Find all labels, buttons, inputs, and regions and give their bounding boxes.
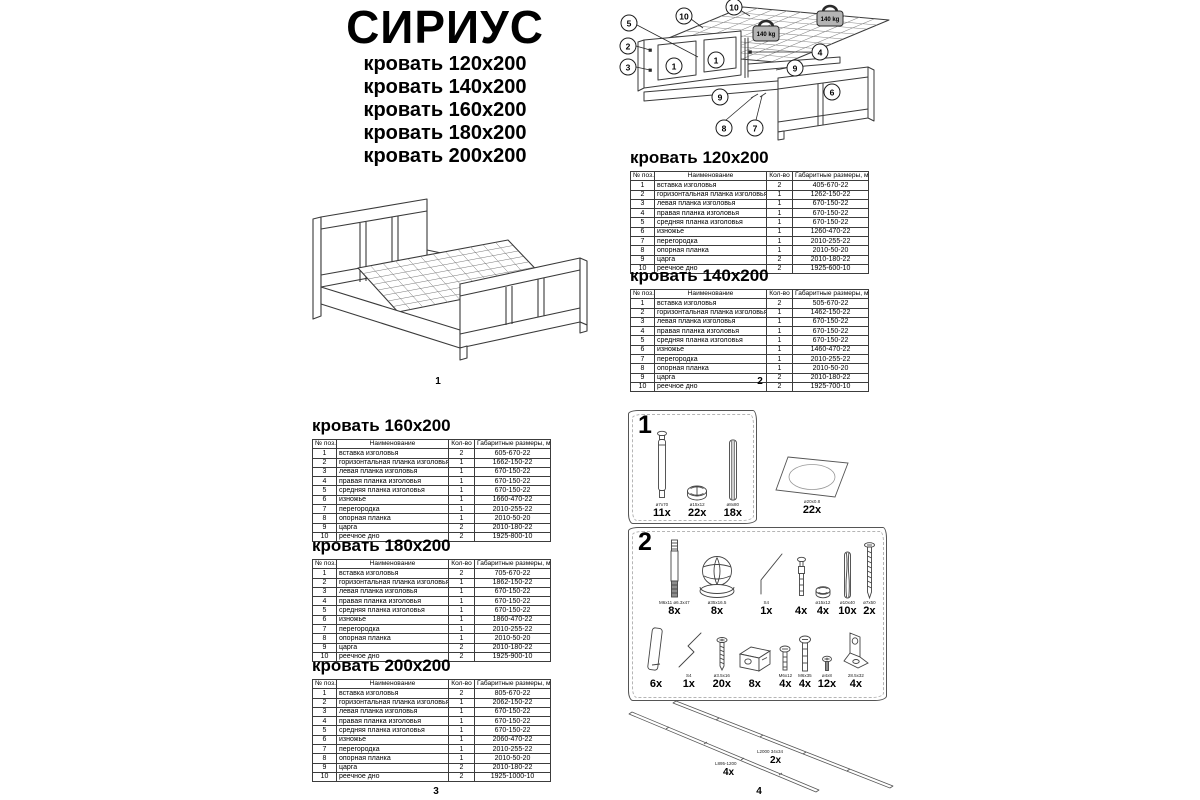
col-header: Габаритные размеры, мм xyxy=(793,172,869,181)
table-cell: средняя планка изголовья xyxy=(337,726,449,735)
small-cam-lock-icon xyxy=(814,585,832,600)
table-cell: 3 xyxy=(631,317,655,326)
table-cell: 5 xyxy=(631,336,655,345)
hardware-count: 12x xyxy=(818,678,836,690)
table-cell: 1 xyxy=(631,181,655,190)
table-cell: реечное дно xyxy=(337,772,449,781)
table-cell: 5 xyxy=(313,606,337,615)
table-cell: 3 xyxy=(631,199,655,208)
hardware-item: ø10х40 10x xyxy=(838,550,856,617)
table-cell: средняя планка изголовья xyxy=(655,336,767,345)
table-cell: 1 xyxy=(767,227,793,236)
table-cell: 1 xyxy=(767,327,793,336)
parts-table: № поз. Наименование Кол-во Габаритные ра… xyxy=(630,289,869,392)
table-cell: средняя планка изголовья xyxy=(337,486,449,495)
table-cell: опорная планка xyxy=(655,364,767,373)
table-title: кровать 160х200 xyxy=(312,416,552,436)
col-header: Кол-во xyxy=(449,680,475,689)
table-cell: 2 xyxy=(313,698,337,707)
step-number: 2 xyxy=(638,530,652,555)
table-cell: 7 xyxy=(313,625,337,634)
table-cell: 2060-470-22 xyxy=(475,735,551,744)
table-cell: 7 xyxy=(631,237,655,246)
table-cell: 4 xyxy=(631,327,655,336)
table-cell: 5 xyxy=(313,726,337,735)
double-bolt-icon xyxy=(668,538,681,600)
hardware-count: 2x xyxy=(863,605,875,617)
callout-9: 9 xyxy=(787,60,804,77)
table-cell: 2010-180-22 xyxy=(475,523,551,532)
table-cell: царга xyxy=(337,763,449,772)
table-row: 3левая планка изголовья1670-150-22 xyxy=(313,467,551,476)
hardware-count: 18x xyxy=(724,507,742,519)
table-cell: 1 xyxy=(767,336,793,345)
table-row: 7перегородка12010-255-22 xyxy=(631,237,869,246)
table-row: 6изножье11660-470-22 xyxy=(313,495,551,504)
hardware-item: ø35х16.5 8x xyxy=(696,554,738,617)
table-cell: 670-150-22 xyxy=(475,467,551,476)
table-row: 2горизонтальная планка изголовья12062-15… xyxy=(313,698,551,707)
size-line: кровать 200х200 xyxy=(295,145,595,168)
col-header: № поз. xyxy=(313,680,337,689)
dowel-icon xyxy=(727,438,739,502)
table-cell: 1 xyxy=(767,308,793,317)
table-cell: 1 xyxy=(449,467,475,476)
table-cell: средняя планка изголовья xyxy=(655,218,767,227)
col-header: № поз. xyxy=(313,560,337,569)
parts-table: № поз. Наименование Кол-во Габаритные ра… xyxy=(630,171,869,274)
hardware-count: 20x xyxy=(713,678,731,690)
parts-table: № поз. Наименование Кол-во Габаритные ра… xyxy=(312,679,551,782)
table-cell: горизонтальная планка изголовья xyxy=(655,190,767,199)
table-cell: 1 xyxy=(449,477,475,486)
table-cell: горизонтальная планка изголовья xyxy=(337,458,449,467)
table-cell: 2 xyxy=(767,255,793,264)
table-cell: 670-150-22 xyxy=(475,486,551,495)
table-cell: 3 xyxy=(313,467,337,476)
table-header-row: № поз. Наименование Кол-во Габаритные ра… xyxy=(313,560,551,569)
table-row: 6изножье11860-470-22 xyxy=(313,615,551,624)
table-cell: 1 xyxy=(767,190,793,199)
table-cell: изножье xyxy=(337,495,449,504)
callout-9: 9 xyxy=(712,89,729,106)
table-cell: 5 xyxy=(631,218,655,227)
table-cell: 8 xyxy=(313,634,337,643)
table-cell: 405-670-22 xyxy=(793,181,869,190)
table-cell: 3 xyxy=(313,707,337,716)
hardware-count: 1x xyxy=(760,605,772,617)
table-cell: 2062-150-22 xyxy=(475,698,551,707)
table-row: 5средняя планка изголовья1670-150-22 xyxy=(313,606,551,615)
table-cell: 1 xyxy=(449,495,475,504)
table-cell: 670-150-22 xyxy=(793,199,869,208)
cover-sticker-icon xyxy=(774,455,850,499)
table-row: 10реечное дно21925-1000-10 xyxy=(313,772,551,781)
table-cell: 1 xyxy=(449,505,475,514)
table-cell: 1 xyxy=(449,707,475,716)
callout-6: 6 xyxy=(824,84,841,101)
table-cell: левая планка изголовья xyxy=(337,707,449,716)
table-cell: 1 xyxy=(449,458,475,467)
table-cell: вставка изголовья xyxy=(655,299,767,308)
parts-table-200: кровать 200х200 № поз. Наименование Кол-… xyxy=(312,656,552,782)
hardware-item: 4x xyxy=(795,556,808,617)
table-row: 5средняя планка изголовья1670-150-22 xyxy=(631,336,869,345)
hardware-count: 4x xyxy=(779,678,791,690)
table-cell: горизонтальная планка изголовья xyxy=(337,698,449,707)
table-row: 9царга22010-180-22 xyxy=(313,643,551,652)
table-cell: правая планка изголовья xyxy=(655,327,767,336)
hardware-item: 6x xyxy=(647,625,665,690)
page-number: 3 xyxy=(428,786,444,797)
weight-icon xyxy=(817,6,843,26)
parts-table-120: кровать 120х200 № поз. Наименование Кол-… xyxy=(630,148,870,274)
hardware-item: S4 1x xyxy=(744,548,788,617)
callout-4: 4 xyxy=(812,44,829,61)
table-title: кровать 200х200 xyxy=(312,656,552,676)
table-row: 3левая планка изголовья1670-150-22 xyxy=(631,317,869,326)
table-row: 2горизонтальная планка изголовья11862-15… xyxy=(313,578,551,587)
long-bolt-icon xyxy=(655,430,669,502)
table-cell: перегородка xyxy=(337,625,449,634)
hardware-count: 8x xyxy=(749,678,761,690)
table-cell: 7 xyxy=(313,745,337,754)
table-cell: левая планка изголовья xyxy=(337,467,449,476)
parts-table: № поз. Наименование Кол-во Габаритные ра… xyxy=(312,439,551,542)
table-cell: 2010-50-20 xyxy=(475,634,551,643)
hardware-panel-2: 2 M6х11 ø6.3х47 8x ø35х16.5 8x xyxy=(628,527,887,701)
table-cell: 1 xyxy=(449,587,475,596)
table-header-row: № поз. Наименование Кол-во Габаритные ра… xyxy=(631,290,869,299)
table-cell: перегородка xyxy=(655,237,767,246)
angle-bracket-icon xyxy=(842,631,870,673)
table-row: 3левая планка изголовья1670-150-22 xyxy=(313,587,551,596)
hardware-item: ø15х12 4x xyxy=(814,585,832,617)
table-cell: 670-150-22 xyxy=(793,317,869,326)
table-cell: 1 xyxy=(449,717,475,726)
table-cell: 6 xyxy=(631,345,655,354)
table-cell: 2010-255-22 xyxy=(475,745,551,754)
table-cell: 1 xyxy=(449,698,475,707)
table-cell: 1 xyxy=(449,754,475,763)
callout-3: 3 xyxy=(620,59,637,76)
col-header: Габаритные размеры, мм xyxy=(475,680,551,689)
hardware-count: 6x xyxy=(650,678,662,690)
table-header-row: № поз. Наименование Кол-во Габаритные ра… xyxy=(313,680,551,689)
table-row: 3левая планка изголовья1670-150-22 xyxy=(313,707,551,716)
hardware-count: 8x xyxy=(668,605,680,617)
table-cell: перегородка xyxy=(337,745,449,754)
table-title: кровать 140х200 xyxy=(630,266,870,286)
table-row: 8опорная планка12010-50-20 xyxy=(313,754,551,763)
col-header: Наименование xyxy=(337,560,449,569)
parts-table-140: кровать 140х200 № поз. Наименование Кол-… xyxy=(630,266,870,392)
table-cell: 10 xyxy=(313,772,337,781)
table-cell: 4 xyxy=(313,717,337,726)
table-cell: 2 xyxy=(313,578,337,587)
parts-table-180: кровать 180х200 № поз. Наименование Кол-… xyxy=(312,536,552,662)
size-line: кровать 140х200 xyxy=(295,76,595,99)
table-row: 1вставка изголовья2405-670-22 xyxy=(631,181,869,190)
table-cell: 1 xyxy=(313,689,337,698)
table-row: 4правая планка изголовья1670-150-22 xyxy=(313,477,551,486)
callout-5: 5 xyxy=(621,15,638,32)
table-cell: 9 xyxy=(313,643,337,652)
table-cell: левая планка изголовья xyxy=(655,317,767,326)
table-row: 7перегородка12010-255-22 xyxy=(313,505,551,514)
slat-count: 2x xyxy=(770,756,781,766)
table-row: 1вставка изголовья2605-670-22 xyxy=(313,449,551,458)
callout-8: 8 xyxy=(716,120,733,137)
table-row: 2горизонтальная планка изголовья11262-15… xyxy=(631,190,869,199)
table-cell: опорная планка xyxy=(337,634,449,643)
wood-screw-icon xyxy=(716,637,728,673)
page-title: СИРИУС xyxy=(295,2,595,53)
table-row: 1вставка изголовья2805-670-22 xyxy=(313,689,551,698)
table-row: 4правая планка изголовья1670-150-22 xyxy=(631,209,869,218)
table-row: 9царга22010-180-22 xyxy=(313,523,551,532)
table-header-row: № поз. Наименование Кол-во Габаритные ра… xyxy=(313,440,551,449)
table-cell: 4 xyxy=(313,477,337,486)
hardware-count: 10x xyxy=(838,605,856,617)
table-cell: 2 xyxy=(767,382,793,391)
table-cell: 1860-470-22 xyxy=(475,615,551,624)
hardware-item: M6х35 4x xyxy=(798,635,812,690)
table-row: 4правая планка изголовья1670-150-22 xyxy=(313,597,551,606)
table-row: 10реечное дно21925-700-10 xyxy=(631,382,869,391)
slat-count: 4x xyxy=(723,768,734,778)
table-cell: 6 xyxy=(313,615,337,624)
table-cell: 2 xyxy=(449,449,475,458)
table-cell: 6 xyxy=(313,735,337,744)
exploded-diagram: 140 kg 140 kg 523101011496987 xyxy=(608,0,890,150)
table-cell: 1 xyxy=(449,726,475,735)
table-cell: 670-150-22 xyxy=(475,707,551,716)
table-cell: 6 xyxy=(631,227,655,236)
table-cell: 670-150-22 xyxy=(475,606,551,615)
table-cell: 1 xyxy=(449,634,475,643)
table-cell: 1260-470-22 xyxy=(793,227,869,236)
table-row: 5средняя планка изголовья1670-150-22 xyxy=(313,486,551,495)
table-cell: 705-670-22 xyxy=(475,569,551,578)
table-cell: правая планка изголовья xyxy=(337,477,449,486)
corner-block-icon xyxy=(737,643,773,673)
table-cell: 2 xyxy=(449,569,475,578)
title-block: СИРИУС кровать 120х200 кровать 140х200 к… xyxy=(295,2,595,168)
table-cell: 6 xyxy=(313,495,337,504)
table-cell: 2 xyxy=(449,763,475,772)
page-number: 2 xyxy=(752,376,768,387)
hardware-item: ø7х70 11x xyxy=(653,430,671,519)
table-cell: 2010-50-20 xyxy=(475,514,551,523)
table-row: 2горизонтальная планка изголовья11462-15… xyxy=(631,308,869,317)
table-cell: опорная планка xyxy=(655,246,767,255)
table-cell: 1 xyxy=(449,735,475,744)
table-cell: 805-670-22 xyxy=(475,689,551,698)
table-cell: левая планка изголовья xyxy=(655,199,767,208)
hardware-item: M6х12 4x xyxy=(779,645,793,690)
table-cell: опорная планка xyxy=(337,754,449,763)
table-cell: реечное дно xyxy=(655,382,767,391)
weight-label: 140 kg xyxy=(821,17,840,23)
table-row: 1вставка изголовья2705-670-22 xyxy=(313,569,551,578)
table-cell: 2 xyxy=(767,373,793,382)
table-cell: вставка изголовья xyxy=(337,449,449,458)
table-cell: 2010-255-22 xyxy=(475,505,551,514)
table-cell: горизонтальная планка изголовья xyxy=(337,578,449,587)
z-key-icon xyxy=(671,629,707,673)
table-cell: 1 xyxy=(767,209,793,218)
table-cell: 1 xyxy=(449,745,475,754)
table-cell: 7 xyxy=(313,505,337,514)
hardware-item: M6х11 ø6.3х47 8x xyxy=(659,538,690,617)
table-cell: 2 xyxy=(631,190,655,199)
table-row: 8опорная планка12010-50-20 xyxy=(313,514,551,523)
hex-key-icon xyxy=(744,548,788,600)
table-row: 6изножье11260-470-22 xyxy=(631,227,869,236)
table-cell: царга xyxy=(655,255,767,264)
table-cell: горизонтальная планка изголовья xyxy=(655,308,767,317)
flat-plate-icon xyxy=(647,625,665,673)
table-cell: перегородка xyxy=(337,505,449,514)
table-cell: перегородка xyxy=(655,355,767,364)
table-row: 4правая планка изголовья1670-150-22 xyxy=(313,717,551,726)
hardware-count: 8x xyxy=(711,605,723,617)
hardware-item: 28.5х32 4x xyxy=(842,631,870,690)
table-cell: 1 xyxy=(767,199,793,208)
table-cell: левая планка изголовья xyxy=(337,587,449,596)
table-cell: 1662-150-22 xyxy=(475,458,551,467)
slat-label: L895-1200 xyxy=(715,761,737,766)
table-cell: 1 xyxy=(449,578,475,587)
table-cell: 5 xyxy=(313,486,337,495)
table-cell: 1 xyxy=(313,569,337,578)
table-cell: вставка изголовья xyxy=(337,689,449,698)
table-cell: 4 xyxy=(313,597,337,606)
col-header: Габаритные размеры, мм xyxy=(793,290,869,299)
table-cell: 2010-50-20 xyxy=(475,754,551,763)
callout-1: 1 xyxy=(666,58,683,75)
hardware-panel-1: 1 ø7х70 11x ø15х12 22x xyxy=(628,410,757,524)
table-title: кровать 120х200 xyxy=(630,148,870,168)
hardware-count: 4x xyxy=(817,605,829,617)
table-cell: 1 xyxy=(313,449,337,458)
col-header: Кол-во xyxy=(449,440,475,449)
large-cam-lock-icon xyxy=(696,554,738,600)
col-header: Наименование xyxy=(337,440,449,449)
callout-7: 7 xyxy=(747,120,764,137)
table-title: кровать 180х200 xyxy=(312,536,552,556)
machine-bolt-long-icon xyxy=(798,635,812,673)
table-cell: вставка изголовья xyxy=(655,181,767,190)
col-header: Наименование xyxy=(655,290,767,299)
small-screw-icon xyxy=(821,655,833,673)
table-cell: 670-150-22 xyxy=(475,477,551,486)
table-cell: 2010-180-22 xyxy=(475,643,551,652)
hardware-count: 22x xyxy=(770,504,854,516)
table-cell: 1 xyxy=(767,246,793,255)
hardware-count: 22x xyxy=(688,507,706,519)
table-cell: 1 xyxy=(631,299,655,308)
table-cell: 2 xyxy=(449,523,475,532)
table-cell: царга xyxy=(337,523,449,532)
table-cell: 4 xyxy=(631,209,655,218)
col-header: Кол-во xyxy=(767,290,793,299)
table-cell: 9 xyxy=(631,373,655,382)
table-row: 9царга22010-180-22 xyxy=(631,373,869,382)
parts-table: № поз. Наименование Кол-во Габаритные ра… xyxy=(312,559,551,662)
fluted-dowel-icon xyxy=(842,550,853,600)
hardware-item: S4 1x xyxy=(671,629,707,690)
size-line: кровать 180х200 xyxy=(295,122,595,145)
table-cell: 1 xyxy=(449,486,475,495)
hardware-item: 8x xyxy=(737,643,773,690)
table-cell: 670-150-22 xyxy=(475,597,551,606)
table-cell: 3 xyxy=(313,587,337,596)
table-cell: 670-150-22 xyxy=(475,587,551,596)
table-cell: 1 xyxy=(767,237,793,246)
table-cell: 1 xyxy=(449,597,475,606)
col-header: Кол-во xyxy=(449,560,475,569)
table-cell: 670-150-22 xyxy=(793,209,869,218)
table-row: 4правая планка изголовья1670-150-22 xyxy=(631,327,869,336)
size-line: кровать 120х200 xyxy=(295,53,595,76)
table-cell: 8 xyxy=(313,514,337,523)
table-cell: 10 xyxy=(631,382,655,391)
table-row: 7перегородка12010-255-22 xyxy=(313,625,551,634)
table-cell: 8 xyxy=(313,754,337,763)
table-row: 6изножье11460-470-22 xyxy=(631,345,869,354)
table-cell: царга xyxy=(337,643,449,652)
hardware-count: 11x xyxy=(653,507,671,519)
table-cell: 1 xyxy=(767,218,793,227)
table-cell: 1 xyxy=(767,317,793,326)
table-cell: 9 xyxy=(631,255,655,264)
hardware-count: 4x xyxy=(850,678,862,690)
table-cell: 8 xyxy=(631,364,655,373)
table-row: 3левая планка изголовья1670-150-22 xyxy=(631,199,869,208)
table-row: 5средняя планка изголовья1670-150-22 xyxy=(631,218,869,227)
table-cell: 670-150-22 xyxy=(793,327,869,336)
size-line: кровать 160х200 xyxy=(295,99,595,122)
table-cell: 7 xyxy=(631,355,655,364)
table-cell: царга xyxy=(655,373,767,382)
table-row: 8опорная планка12010-50-20 xyxy=(631,364,869,373)
table-cell: средняя планка изголовья xyxy=(337,606,449,615)
table-cell: 2 xyxy=(449,772,475,781)
parts-table-160: кровать 160х200 № поз. Наименование Кол-… xyxy=(312,416,552,542)
table-cell: 2 xyxy=(631,308,655,317)
table-cell: изножье xyxy=(655,227,767,236)
callout-2: 2 xyxy=(620,38,637,55)
sticker-item: ø20х0.8 22x xyxy=(770,455,854,516)
table-cell: 2010-255-22 xyxy=(793,237,869,246)
table-cell: 1 xyxy=(449,625,475,634)
table-cell: изножье xyxy=(337,615,449,624)
table-cell: опорная планка xyxy=(337,514,449,523)
table-cell: 2 xyxy=(449,643,475,652)
table-row: 2горизонтальная планка изголовья11662-15… xyxy=(313,458,551,467)
col-header: Кол-во xyxy=(767,172,793,181)
table-cell: правая планка изголовья xyxy=(337,717,449,726)
table-row: 9царга22010-180-22 xyxy=(631,255,869,264)
col-header: Габаритные размеры, мм xyxy=(475,440,551,449)
table-cell: 1925-1000-10 xyxy=(475,772,551,781)
hardware-item: ø8х80 18x xyxy=(724,438,742,519)
table-cell: изножье xyxy=(655,345,767,354)
table-row: 1вставка изголовья2505-670-22 xyxy=(631,299,869,308)
col-header: Наименование xyxy=(655,172,767,181)
